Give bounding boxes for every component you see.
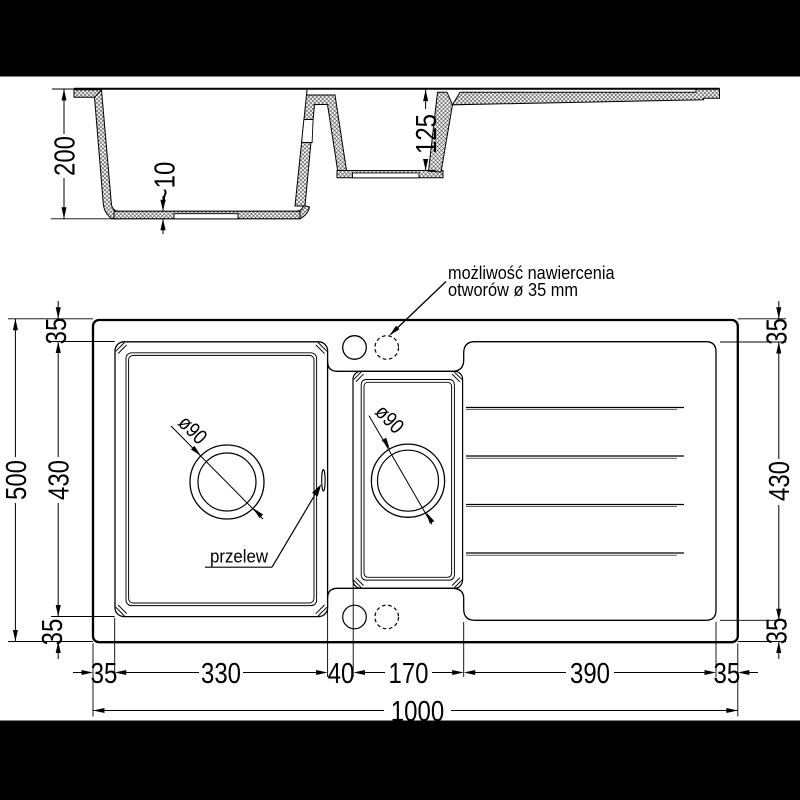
svg-text:200: 200 bbox=[49, 136, 81, 176]
svg-text:390: 390 bbox=[570, 658, 610, 690]
svg-text:330: 330 bbox=[201, 658, 241, 690]
svg-text:430: 430 bbox=[764, 461, 796, 501]
svg-text:500: 500 bbox=[1, 460, 33, 500]
svg-text:35: 35 bbox=[761, 618, 793, 645]
svg-text:35: 35 bbox=[761, 318, 793, 345]
svg-text:otworów ø 35 mm: otworów ø 35 mm bbox=[448, 279, 578, 300]
svg-text:170: 170 bbox=[389, 658, 429, 690]
svg-text:1000: 1000 bbox=[391, 696, 444, 728]
svg-text:430: 430 bbox=[44, 460, 76, 500]
svg-text:35: 35 bbox=[37, 619, 69, 646]
svg-text:przelew: przelew bbox=[210, 546, 269, 567]
svg-text:125: 125 bbox=[411, 114, 443, 154]
svg-text:35: 35 bbox=[41, 318, 73, 345]
svg-text:~10: ~10 bbox=[149, 162, 181, 203]
svg-text:35: 35 bbox=[714, 658, 741, 690]
svg-text:40: 40 bbox=[328, 658, 355, 690]
svg-text:35: 35 bbox=[91, 658, 118, 690]
